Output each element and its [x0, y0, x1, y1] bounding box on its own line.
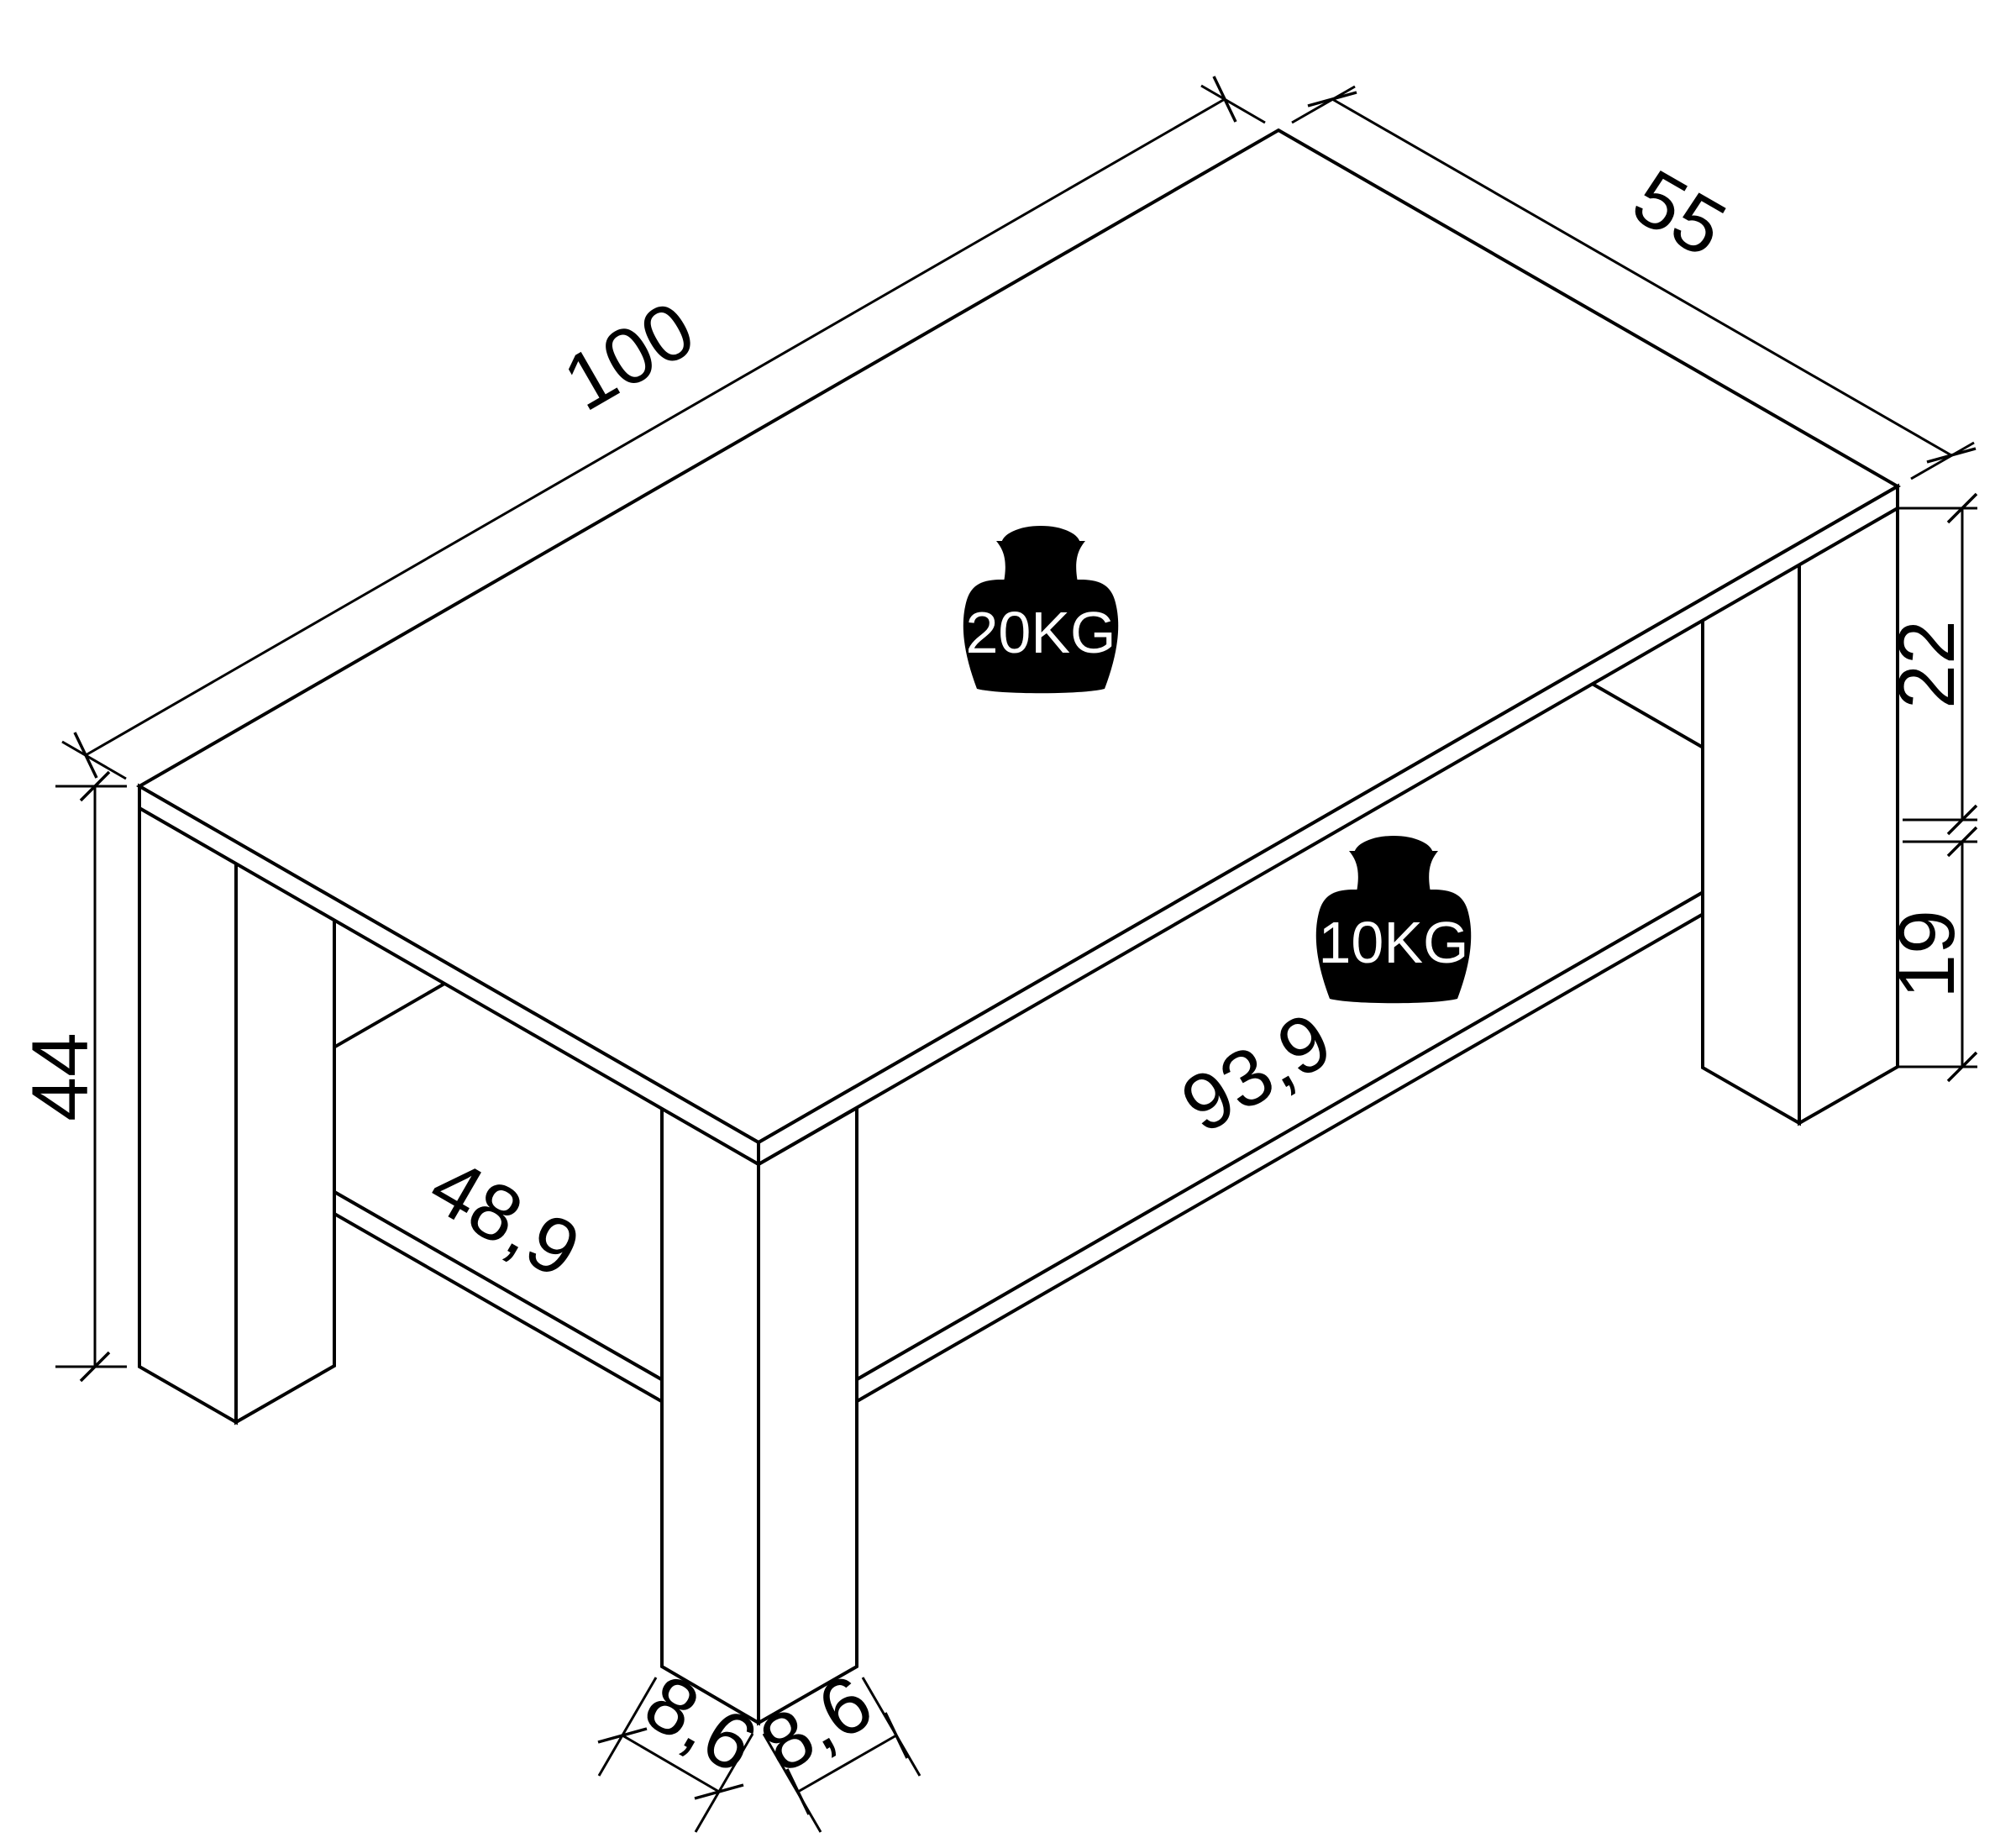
dim-label-under-shelf: 19	[1882, 910, 1971, 999]
max-load-shelf-label: 10KG	[1319, 910, 1469, 975]
front-leg-left-face	[662, 1108, 759, 1723]
dim-label-height: 44	[16, 1032, 105, 1121]
left-leg-outer-face	[139, 808, 236, 1422]
right-leg-front-face	[1799, 508, 1898, 1123]
max-load-tabletop-label: 20KG	[966, 600, 1116, 665]
coffee-table-dimension-drawing: 100 55 44 22 19 48,9 93,9	[0, 0, 2016, 1848]
technical-drawing-page: 100 55 44 22 19 48,9 93,9	[0, 0, 2016, 1848]
front-leg-right-face	[759, 1108, 857, 1723]
dim-label-clearance: 22	[1882, 620, 1971, 709]
front-leg	[662, 1108, 857, 1723]
